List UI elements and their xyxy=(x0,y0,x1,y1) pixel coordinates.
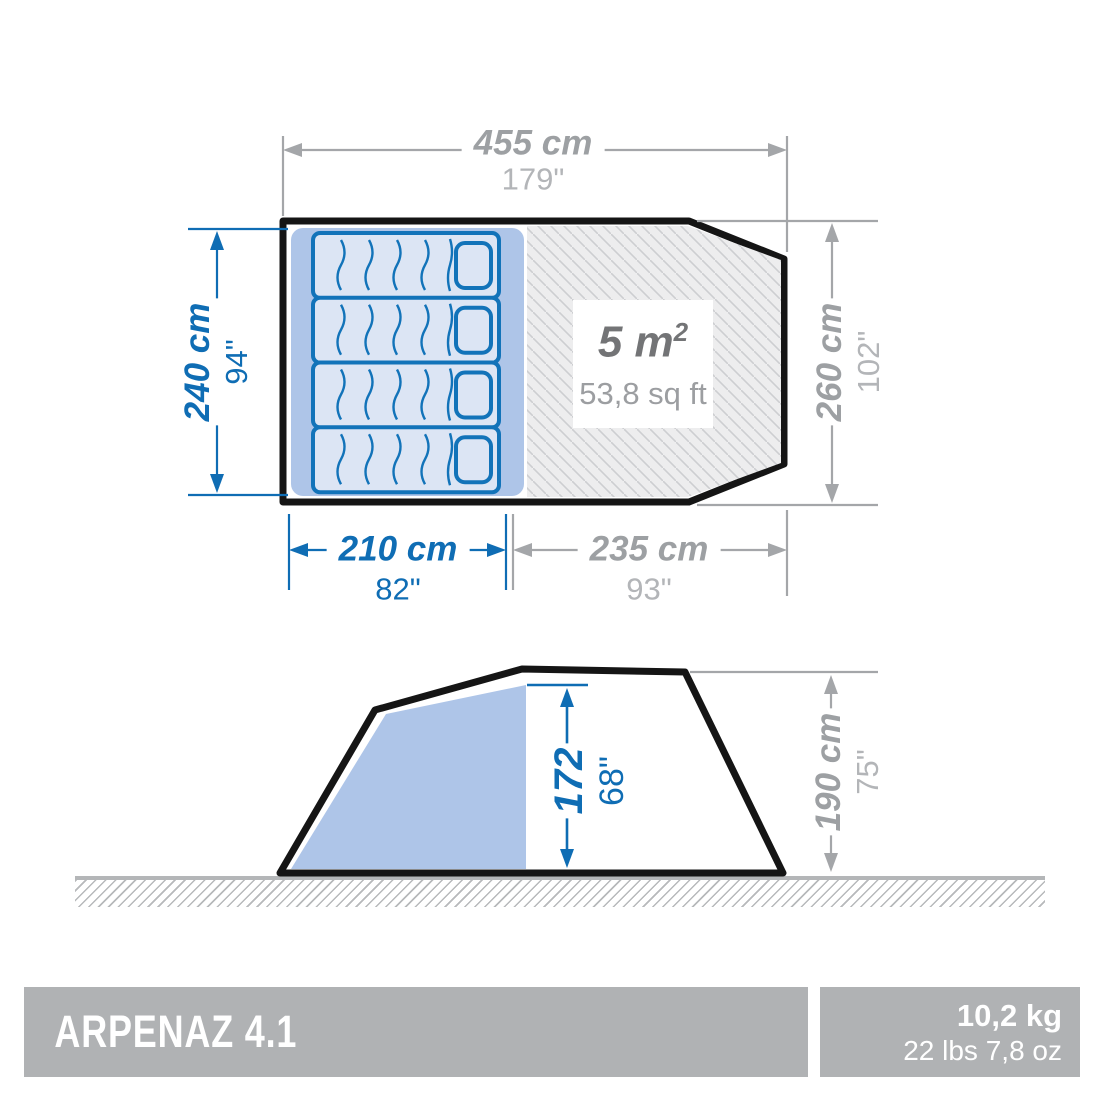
bedroom-width-cm-label: 210 cm xyxy=(327,530,470,569)
total-depth-label: 260 cm 102" xyxy=(804,299,892,426)
mattress-icon xyxy=(313,427,499,492)
tent-side-view xyxy=(280,669,783,873)
bedroom-depth-in-label: 94" xyxy=(221,339,252,385)
side-cabin-fill xyxy=(291,685,526,869)
living-area-imperial: 53,8 sq ft xyxy=(579,378,707,409)
bedroom-depth-label: 240 cm 94" xyxy=(172,299,260,426)
living-area-metric: 5 m2 xyxy=(598,319,688,365)
product-name: ARPENAZ 4.1 xyxy=(24,1006,297,1058)
total-height-in-label: 75" xyxy=(852,749,883,795)
total-depth-cm-label: 260 cm xyxy=(812,303,847,422)
bedroom-width-in-label: 82" xyxy=(375,574,421,605)
mattress-icon xyxy=(313,363,499,428)
total-height-label: 190 cm 75" xyxy=(803,709,891,836)
interior-height-in-label: 68" xyxy=(595,756,629,806)
mattress-icon xyxy=(313,298,499,363)
bedroom-depth-cm-label: 240 cm xyxy=(180,303,215,422)
weight-imperial: 22 lbs 7,8 oz xyxy=(903,1037,1062,1065)
total-width-in-label: 179" xyxy=(502,164,565,195)
living-area-label: 5 m2 53,8 sq ft xyxy=(573,300,713,428)
living-width-in-label: 93" xyxy=(626,574,672,605)
product-name-bar: ARPENAZ 4.1 xyxy=(24,987,808,1077)
tent-dimensions-diagram: 455 cm 179" 260 cm 102" 240 cm 94" 210 c… xyxy=(0,0,1100,1100)
mattress-icon xyxy=(313,233,499,298)
total-depth-in-label: 102" xyxy=(853,331,884,394)
weight-bar: 10,2 kg 22 lbs 7,8 oz xyxy=(820,987,1080,1077)
total-width-cm-label: 455 cm xyxy=(462,124,605,163)
interior-height-label: 172 68" xyxy=(541,744,637,819)
living-width-cm-label: 235 cm xyxy=(578,530,721,569)
weight-metric: 10,2 kg xyxy=(957,1000,1062,1031)
interior-height-cm-label: 172 xyxy=(549,748,589,815)
total-height-cm-label: 190 cm xyxy=(811,713,846,832)
